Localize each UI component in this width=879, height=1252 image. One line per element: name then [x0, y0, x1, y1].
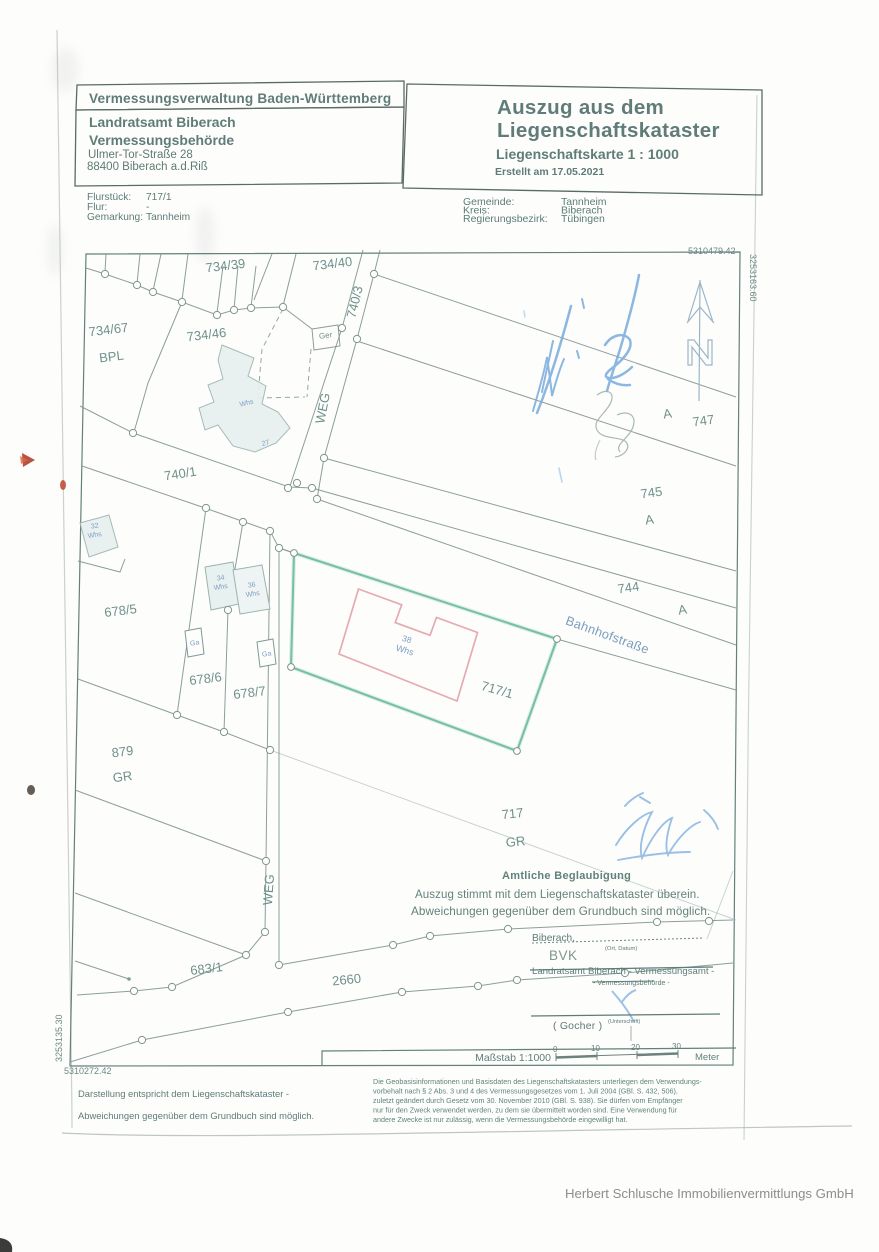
svg-text:717: 717: [501, 805, 524, 822]
svg-text:Ga: Ga: [262, 650, 272, 658]
svg-text:747: 747: [692, 412, 716, 430]
svg-text:GR: GR: [112, 768, 133, 785]
svg-text:745: 745: [640, 484, 664, 502]
svg-text:Auszug stimmt mit dem Liegensc: Auszug stimmt mit dem Liegenschaftskatas…: [415, 889, 700, 901]
svg-text:32: 32: [90, 522, 99, 530]
svg-text:5310272.42: 5310272.42: [64, 1066, 112, 1076]
svg-text:Regierungsbezirk:: Regierungsbezirk:: [463, 213, 548, 225]
svg-text:Tübingen: Tübingen: [561, 213, 605, 225]
svg-text:Maßstab 1:1000: Maßstab 1:1000: [475, 1052, 551, 1064]
svg-text:Amtliche Beglaubigung: Amtliche Beglaubigung: [502, 870, 631, 882]
svg-text:20: 20: [631, 1043, 640, 1052]
svg-text:3253135.30: 3253135.30: [54, 1014, 64, 1062]
svg-text:vorbehalt nach § 2 Abs. 3 und: vorbehalt nach § 2 Abs. 3 und 4 des Verm…: [373, 1087, 678, 1096]
svg-text:717/1: 717/1: [146, 192, 172, 203]
svg-text:0: 0: [553, 1045, 558, 1054]
svg-text:Tannheim: Tannheim: [146, 212, 190, 223]
svg-text:Vermessungsbehörde: Vermessungsbehörde: [89, 132, 234, 148]
svg-text:Abweichungen gegenüber dem Gru: Abweichungen gegenüber dem Grundbuch sin…: [78, 1110, 314, 1121]
svg-text:Abweichungen gegenüber dem Gru: Abweichungen gegenüber dem Grundbuch sin…: [411, 905, 710, 918]
svg-text:GR: GR: [505, 833, 526, 850]
svg-text:Auszug aus dem: Auszug aus dem: [497, 96, 664, 119]
svg-text:744: 744: [617, 579, 641, 597]
svg-text:nur für den Zweck verwendet we: nur für den Zweck verwendet werden, zu d…: [373, 1106, 678, 1115]
svg-text:88400 Biberach a.d.Riß: 88400 Biberach a.d.Riß: [87, 161, 208, 173]
svg-text:10: 10: [591, 1044, 600, 1053]
svg-text:andere Zwecke ist nur zulässig: andere Zwecke ist nur zulässig, wenn die…: [373, 1115, 628, 1124]
svg-text:BVK: BVK: [549, 948, 578, 963]
svg-text:Gemarkung:: Gemarkung:: [87, 212, 143, 223]
svg-text:879: 879: [111, 743, 134, 761]
svg-text:BPL: BPL: [98, 348, 124, 366]
svg-text:WEG: WEG: [260, 874, 277, 906]
svg-text:Liegenschaftskarte 1 : 1000: Liegenschaftskarte 1 : 1000: [496, 146, 679, 162]
svg-text:Herbert Schlusche Immobilienve: Herbert Schlusche Immobilienvermittlungs…: [565, 1186, 854, 1201]
svg-text:Ger: Ger: [318, 330, 333, 341]
svg-text:Die Geobasisinformationen und: Die Geobasisinformationen und Basisdaten…: [373, 1077, 702, 1086]
svg-text:Liegenschaftskataster: Liegenschaftskataster: [497, 119, 720, 142]
svg-text:( Gocher ): ( Gocher ): [553, 1020, 602, 1032]
svg-text:(Unterschrift): (Unterschrift): [608, 1019, 640, 1025]
svg-text:3253163.60: 3253163.60: [748, 254, 758, 302]
svg-text:Ga: Ga: [190, 639, 200, 647]
svg-text:5310479.42: 5310479.42: [688, 246, 736, 256]
svg-text:Landratsamt Biberach: Landratsamt Biberach: [89, 114, 236, 130]
svg-text:36: 36: [247, 581, 256, 589]
svg-text:Erstellt am 17.05.2021: Erstellt am 17.05.2021: [495, 166, 604, 178]
svg-text:Meter: Meter: [695, 1052, 719, 1063]
svg-text:zuletzt geändert durch Gesetz: zuletzt geändert durch Gesetz vom 30. No…: [373, 1096, 683, 1105]
svg-text:Vermessungsverwaltung Baden-Wü: Vermessungsverwaltung Baden-Württemberg: [89, 91, 391, 106]
svg-text:Ulmer-Tor-Straße 28: Ulmer-Tor-Straße 28: [88, 149, 193, 161]
svg-text:30: 30: [672, 1042, 681, 1051]
svg-text:Darstellung entspricht dem Lie: Darstellung entspricht dem Liegenschafts…: [78, 1088, 289, 1099]
svg-text:34: 34: [216, 574, 225, 582]
svg-text:(Ort, Datum): (Ort, Datum): [605, 946, 637, 952]
svg-text:2660: 2660: [331, 971, 361, 989]
